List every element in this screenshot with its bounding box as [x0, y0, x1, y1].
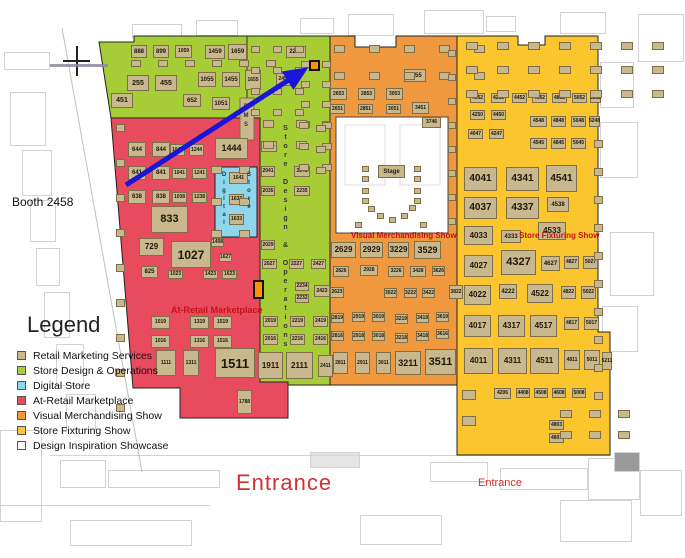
- booth-1027: 1027: [171, 241, 211, 268]
- booth: [131, 60, 141, 67]
- booth: [334, 45, 345, 53]
- booth-899: 899: [153, 45, 169, 58]
- booth: [528, 42, 540, 50]
- booth-2826: 2826: [333, 266, 349, 277]
- booth: [322, 101, 331, 108]
- legend-swatch-white: [17, 441, 26, 450]
- booth-4341: 4341: [506, 167, 539, 191]
- legend-swatch-orange: [17, 411, 26, 420]
- booth-4848: 4848: [551, 116, 566, 127]
- booth-2019: 2019: [263, 316, 278, 327]
- booth: [273, 46, 282, 53]
- booth-2911: 2911: [355, 352, 370, 374]
- booth-4817: 4817: [564, 317, 579, 330]
- legend-item-label: Store Design & Operations: [33, 365, 158, 377]
- booth: [251, 46, 260, 53]
- booth-3746: 3746: [422, 117, 441, 128]
- booth-3529: 3529: [414, 241, 441, 259]
- stage-table: [414, 166, 421, 172]
- booth-2623: 2623: [330, 287, 344, 298]
- booth-4037: 4037: [464, 197, 497, 219]
- booth-3451: 3451: [412, 102, 429, 114]
- visual-merchandising-show-label: Visual Merchandising Show: [351, 231, 457, 240]
- booth-4027: 4027: [464, 255, 493, 277]
- legend-swatch-yellow: [17, 426, 26, 435]
- legend-item-label: Visual Merchandising Show: [33, 410, 162, 422]
- booth-4017: 4017: [464, 315, 491, 337]
- booth-3616: 3616: [436, 329, 449, 339]
- booth: [448, 122, 456, 129]
- booth-2816: 2816: [331, 331, 344, 341]
- booth-1038: 1038: [172, 192, 187, 203]
- booth: [652, 90, 664, 98]
- booth: [621, 90, 633, 98]
- legend-swatch-blue: [17, 381, 26, 390]
- booth: [185, 60, 195, 67]
- legend-swatch-green: [17, 366, 26, 375]
- stage-table: [414, 176, 421, 182]
- booth: [589, 431, 601, 439]
- booth: [594, 140, 603, 148]
- crosshair-icon: [63, 60, 90, 62]
- legend-item-label: Digital Store: [33, 380, 90, 392]
- stage-table: [401, 213, 408, 219]
- digital-vertical-label: Digital: [221, 172, 227, 230]
- booth: [299, 122, 309, 129]
- booth-5017: 5017: [584, 317, 599, 330]
- booth-1511: 1511: [215, 348, 255, 378]
- booth: [559, 90, 571, 98]
- booth-2928: 2928: [360, 265, 378, 276]
- booth-4317: 4317: [498, 315, 525, 337]
- legend-item-at-retail-marketplace: At-Retail Marketplace: [17, 393, 168, 408]
- booth-838: 838: [152, 190, 170, 204]
- booth-5008: 5008: [572, 388, 586, 398]
- booth: [251, 88, 260, 95]
- booth: [116, 124, 125, 132]
- booth: [301, 101, 310, 108]
- booth-2234: 2234: [295, 282, 309, 291]
- stage-table: [362, 198, 369, 204]
- booth: [560, 410, 572, 418]
- booth-3051: 3051: [386, 104, 401, 114]
- booth: [239, 60, 249, 67]
- booth: [251, 67, 260, 74]
- booth-455: 455: [155, 75, 177, 91]
- booth-3011: 3011: [376, 352, 391, 374]
- booth: [448, 170, 456, 177]
- booth-1633: 1633: [229, 214, 244, 225]
- booth-833: 833: [151, 206, 188, 233]
- stage-table: [409, 205, 416, 211]
- booth-2819: 2819: [331, 313, 344, 323]
- booth: [621, 42, 633, 50]
- booth-3019: 3019: [372, 312, 385, 322]
- booth-5045: 5045: [571, 138, 586, 149]
- booth-4822: 4822: [561, 286, 576, 299]
- legend-item-label: Design Inspiration Showcase: [33, 440, 168, 452]
- booth-3418: 3418: [416, 331, 429, 341]
- booth-1659: 1659: [228, 44, 247, 60]
- booth-2419: 2419: [313, 316, 328, 327]
- booth-4022: 4022: [464, 285, 491, 305]
- booth-1623: 1623: [222, 270, 237, 279]
- booth-5211: 5211: [602, 352, 612, 370]
- booth: [618, 410, 630, 418]
- booth-2411: 2411: [318, 355, 333, 377]
- booth-4011: 4011: [464, 348, 493, 374]
- stage-box: Stage: [378, 165, 405, 178]
- booth-2232: 2232: [295, 294, 309, 303]
- booth-888: 888: [131, 45, 147, 58]
- booth-4541: 4541: [546, 165, 577, 192]
- booth-5048: 5048: [571, 116, 586, 127]
- booth-2235: 2235: [294, 186, 310, 196]
- booth-3226: 3226: [388, 266, 404, 277]
- booth-1455: 1455: [222, 72, 240, 87]
- booth-2035: 2035: [261, 186, 275, 196]
- booth-641: 641: [128, 166, 146, 180]
- booth-3422: 3422: [422, 288, 435, 298]
- booth: [594, 392, 603, 400]
- booth: [301, 81, 310, 88]
- store-vertical-label: Store: [246, 172, 252, 218]
- booth: [116, 194, 125, 202]
- crosshair-gray-line: [50, 64, 108, 67]
- legend-item-design-inspiration-showcase: Design Inspiration Showcase: [17, 438, 168, 453]
- booth: [116, 299, 125, 307]
- booth-3053: 3053: [386, 88, 403, 100]
- booth-638: 638: [128, 190, 146, 204]
- booth-2216: 2216: [290, 334, 305, 345]
- booth: [116, 229, 125, 237]
- stage-table: [355, 222, 362, 228]
- stage-table: [362, 176, 369, 182]
- legend-item-label: Store Fixturing Show: [33, 425, 130, 437]
- store-design-operations-vertical-label: Store Design & Operations: [282, 125, 289, 385]
- legend-item-retail-marketing-services: Retail Marketing Services: [17, 348, 168, 363]
- booth: [594, 252, 603, 260]
- booth: [448, 98, 456, 105]
- stage-table: [414, 188, 421, 194]
- legend-item-visual-merchandising-show: Visual Merchandising Show: [17, 408, 168, 423]
- booth: [369, 45, 380, 53]
- stage-label: Stage: [383, 169, 399, 175]
- booth: [594, 196, 603, 204]
- legend-item-label: Retail Marketing Services: [33, 350, 152, 362]
- booth-4827: 4827: [564, 256, 579, 269]
- booth: [497, 66, 509, 74]
- booth: [295, 88, 304, 95]
- booth-2929: 2929: [360, 242, 383, 258]
- booth: [263, 120, 274, 128]
- booth-5248: 5248: [589, 116, 600, 127]
- legend-item-store-fixturing-show: Store Fixturing Show: [17, 423, 168, 438]
- booth: [334, 72, 345, 80]
- booth: [322, 61, 331, 68]
- booth-4222: 4222: [499, 284, 517, 299]
- legend-item-label: At-Retail Marketplace: [33, 395, 133, 407]
- booth-2455: 2455: [276, 73, 292, 86]
- booth-4517: 4517: [530, 315, 557, 337]
- booth: [448, 218, 456, 225]
- booth-2041: 2041: [261, 166, 275, 177]
- booth-2853: 2853: [358, 88, 375, 100]
- booth-1044: 1044: [170, 144, 185, 156]
- stage-table: [362, 188, 369, 194]
- booth: [263, 141, 274, 149]
- booth-3219: 3219: [395, 314, 408, 324]
- booth: [266, 60, 276, 67]
- booth: [590, 42, 602, 50]
- booth-3222: 3222: [404, 288, 417, 298]
- booth-825: 825: [141, 266, 158, 278]
- booth-2423: 2423: [314, 285, 330, 297]
- booth: [528, 66, 540, 74]
- stage-table: [420, 222, 427, 228]
- legend-swatch-tan: [17, 351, 26, 360]
- at-retail-marketplace-label: At-Retail Marketplace: [171, 305, 263, 315]
- booth-2653: 2653: [330, 88, 347, 100]
- stage-table: [389, 217, 396, 223]
- booth: [299, 164, 309, 171]
- booth: [560, 431, 572, 439]
- booth-3428: 3428: [410, 266, 426, 277]
- booth-1408: 1408: [211, 238, 224, 247]
- booth-4511: 4511: [530, 348, 559, 374]
- booth: [466, 66, 478, 74]
- booth: [299, 143, 309, 150]
- legend-item-store-design-operations: Store Design & Operations: [17, 363, 168, 378]
- booth: [652, 42, 664, 50]
- booth: [594, 280, 603, 288]
- booth-4311: 4311: [498, 348, 527, 374]
- booth-3211: 3211: [395, 351, 421, 375]
- booth: [316, 167, 326, 174]
- booth: [273, 109, 282, 116]
- booth: [273, 88, 282, 95]
- booth-2919: 2919: [352, 312, 365, 322]
- booth: [594, 308, 603, 316]
- booth: [462, 390, 476, 400]
- booth-4608: 4608: [552, 388, 566, 398]
- booth-3022: 3022: [384, 288, 397, 298]
- booth: [448, 194, 456, 201]
- booth-4247: 4247: [489, 129, 504, 139]
- booth-652: 652: [183, 94, 201, 107]
- booth: [316, 125, 326, 132]
- booth-4408: 4408: [516, 388, 530, 398]
- booth: [589, 410, 601, 418]
- booth: [621, 66, 633, 74]
- zone-layer: [0, 0, 685, 558]
- booth: [594, 336, 603, 344]
- booth-1059: 1059: [175, 45, 192, 58]
- booth-4333: 4333: [501, 230, 521, 243]
- booth: [211, 230, 222, 238]
- booth-4450: 4450: [491, 110, 506, 120]
- booth-4327: 4327: [501, 250, 536, 275]
- booth-2918: 2918: [352, 331, 365, 341]
- legend-item-digital-store: Digital Store: [17, 378, 168, 393]
- highlighted-booth: [309, 60, 320, 71]
- booth: [594, 364, 603, 372]
- booth-4033: 4033: [464, 226, 493, 245]
- booth: [559, 66, 571, 74]
- stage-table: [362, 166, 369, 172]
- booth-3229: 3229: [388, 242, 409, 258]
- entrance-main-label: Entrance: [236, 470, 332, 496]
- booth: [369, 72, 380, 80]
- booth: [322, 81, 331, 88]
- booth-2027: 2027: [262, 259, 277, 269]
- booth-1788: 1788: [237, 390, 252, 414]
- highlighted-booth: [253, 280, 264, 299]
- booth-4508: 4508: [534, 388, 548, 398]
- booth: [273, 67, 282, 74]
- booth-3018: 3018: [372, 331, 385, 341]
- booth-2629: 2629: [331, 242, 356, 258]
- booth: [404, 72, 415, 80]
- booth: [448, 74, 456, 81]
- booth: [448, 50, 456, 57]
- booth-4545: 4545: [530, 138, 547, 149]
- booth-4538: 4538: [547, 197, 569, 212]
- booth: [462, 416, 476, 426]
- booth-4047: 4047: [468, 129, 483, 139]
- booth-2016: 2016: [263, 334, 278, 345]
- legend-title: Legend: [27, 312, 168, 338]
- booth-3626: 3626: [432, 266, 445, 276]
- booth-2651: 2651: [330, 104, 345, 114]
- booth-1051: 1051: [212, 97, 230, 110]
- booth: [316, 146, 326, 153]
- booth: [448, 146, 456, 153]
- booth: [528, 90, 540, 98]
- booth-841: 841: [152, 166, 170, 180]
- booth: [497, 90, 509, 98]
- booth: [212, 60, 222, 67]
- booth-3218: 3218: [395, 333, 408, 343]
- booth: [466, 90, 478, 98]
- booth-1241: 1241: [192, 168, 207, 179]
- booth: [594, 168, 603, 176]
- booth: [590, 66, 602, 74]
- booth-2227: 2227: [289, 259, 304, 269]
- booth-4452: 4452: [512, 93, 527, 103]
- booth-4811: 4811: [564, 350, 580, 370]
- booth: [116, 264, 125, 272]
- booth-4250: 4250: [470, 110, 485, 120]
- booth-1423: 1423: [203, 270, 218, 279]
- legend-swatch-red: [17, 396, 26, 405]
- booth-3419: 3419: [416, 313, 429, 323]
- booth-2811: 2811: [333, 352, 348, 374]
- booth: [295, 46, 304, 53]
- booth-1911: 1911: [258, 352, 283, 379]
- booth-451: 451: [111, 93, 133, 108]
- booth-2851: 2851: [358, 104, 373, 114]
- booth: [559, 42, 571, 50]
- stage-table: [368, 206, 375, 212]
- rms-vertical-label: RMS: [243, 104, 249, 136]
- stage-table: [377, 213, 384, 219]
- booth: [116, 159, 125, 167]
- booth: [497, 42, 509, 50]
- booth-2219: 2219: [290, 316, 305, 327]
- booth: [590, 90, 602, 98]
- legend: Legend Retail Marketing Services Store D…: [17, 312, 168, 453]
- booth-5052: 5052: [572, 93, 587, 103]
- store-fixturing-show-label: Store Fixturing Show: [519, 231, 599, 240]
- booth-4845: 4845: [551, 138, 566, 149]
- booth-4627: 4627: [541, 256, 560, 271]
- booth-1238: 1238: [192, 192, 207, 203]
- booth-1316: 1316: [190, 335, 209, 348]
- booth: [404, 45, 415, 53]
- booth-1244: 1244: [189, 144, 204, 156]
- booth-4041: 4041: [464, 167, 497, 191]
- booth: [295, 67, 304, 74]
- entrance-side-label: Entrance: [478, 477, 522, 489]
- booth-1459: 1459: [205, 45, 225, 59]
- booth-4803: 4803: [549, 420, 564, 430]
- stage-table: [414, 198, 421, 204]
- booth-1444: 1444: [215, 138, 248, 159]
- booth: [652, 66, 664, 74]
- booth-729: 729: [139, 238, 164, 256]
- booth: [239, 230, 250, 238]
- booth-255: 255: [127, 75, 149, 91]
- booth-2029: 2029: [261, 240, 275, 250]
- booth-4522: 4522: [527, 284, 553, 303]
- booth-1055: 1055: [198, 72, 216, 87]
- booth-1516: 1516: [213, 335, 232, 348]
- booth-3822: 3822: [449, 285, 463, 299]
- booth: [295, 109, 304, 116]
- booth-1627: 1627: [219, 253, 232, 262]
- booth-1319: 1319: [190, 316, 209, 329]
- expo-floor-plan: 8888991059145916592299255455105514551655…: [0, 0, 685, 558]
- booth-844: 844: [152, 142, 170, 157]
- booth-3511: 3511: [425, 349, 456, 375]
- booth-2427: 2427: [311, 259, 326, 269]
- booth-1519: 1519: [213, 316, 232, 329]
- booth-1023: 1023: [168, 270, 183, 279]
- booth-644: 644: [128, 142, 146, 157]
- booth: [251, 109, 260, 116]
- booth: [158, 60, 168, 67]
- booth-4337: 4337: [506, 197, 539, 219]
- booth-1311: 1311: [183, 350, 199, 376]
- booth-4548: 4548: [530, 116, 547, 127]
- booth: [466, 42, 478, 50]
- booth-callout-label: Booth 2458: [12, 195, 73, 209]
- booth-4206: 4206: [494, 388, 511, 399]
- booth-1041: 1041: [172, 168, 187, 179]
- booth-2416: 2416: [313, 334, 328, 345]
- booth: [618, 431, 630, 439]
- booth-3619: 3619: [436, 312, 449, 322]
- booth-2111: 2111: [286, 352, 313, 379]
